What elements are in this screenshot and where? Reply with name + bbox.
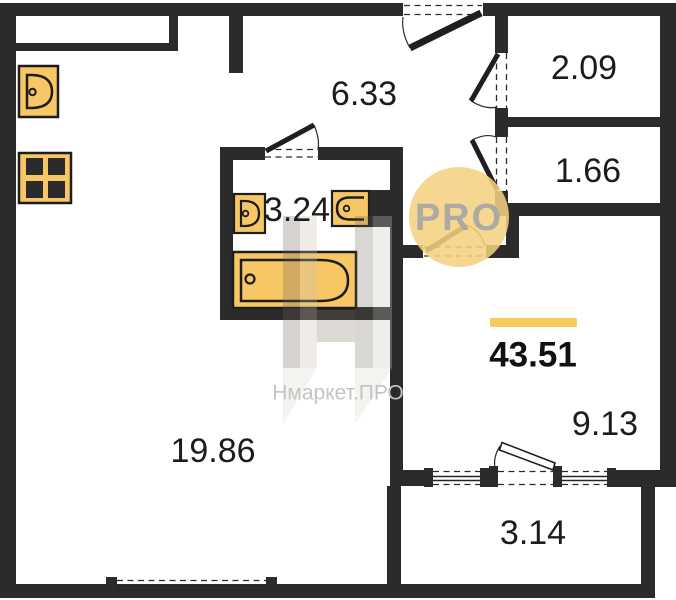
watermark-shape [300, 216, 317, 368]
balcony-window-right [562, 468, 616, 487]
wall-storage-divider [508, 117, 660, 127]
window-glazing [433, 477, 480, 481]
window-post [607, 468, 616, 487]
door-leaf [471, 54, 498, 101]
wall-storage-jamb-top [495, 16, 508, 53]
wall-balcony-left [387, 486, 401, 598]
bathroom-door [265, 125, 319, 157]
wall-top-left [0, 3, 403, 16]
kitchen-sink [19, 66, 58, 117]
door-swing-arc [314, 125, 319, 149]
sink-body [234, 194, 265, 233]
wall-storage-jamb-middle [495, 108, 508, 137]
window-glazing [562, 477, 607, 481]
window-post [424, 468, 433, 487]
watermark-shape [355, 216, 373, 368]
watermark-brand-text: Нмаркет.ПРО [272, 382, 403, 405]
wall-below-storage [495, 203, 660, 216]
door-swing-arc [403, 17, 410, 48]
stove-burner [26, 158, 43, 175]
wall-top-right [483, 3, 676, 16]
door-post [489, 466, 498, 487]
label-balcony-area: 3.14 [500, 514, 566, 552]
label-hallway-area: 6.33 [331, 75, 397, 113]
balcony-door [489, 443, 562, 488]
wall-entry-partition [229, 16, 243, 73]
wall-balcony-right [641, 486, 655, 598]
label-living-area: 19.86 [170, 432, 255, 470]
pro-logo-badge: PRO [409, 167, 509, 267]
door-dashed-opening [498, 472, 553, 485]
wall-window-row-right [616, 470, 676, 487]
label-room-area: 9.13 [572, 405, 638, 443]
label-bathroom-area: 3.24 [264, 191, 330, 229]
stove-burner [26, 181, 43, 198]
pro-logo-text: PRO [415, 197, 503, 239]
stove-burner [48, 158, 65, 175]
floor-plan-drawing: Нмаркет.ПРО 19.86 6.33 2.09 1.66 3.24 9.… [0, 0, 676, 600]
floor-plan-image: Нмаркет.ПРО 19.86 6.33 2.09 1.66 3.24 9.… [0, 0, 676, 600]
bathroom-sink [234, 194, 265, 233]
door-swing-arc [471, 101, 497, 108]
label-storage-lower-area: 1.66 [555, 152, 621, 190]
window-post [480, 468, 489, 487]
wall-kitchen-niche-horizontal [16, 43, 178, 51]
watermark-shape [283, 216, 300, 368]
label-storage-upper-area: 2.09 [551, 49, 617, 87]
wall-bathroom-left [220, 147, 233, 320]
storage-upper-door [471, 53, 507, 108]
wall-left [0, 3, 16, 598]
window-post [106, 577, 117, 596]
label-total-area: 43.51 [489, 336, 577, 375]
door-leaf [410, 13, 481, 48]
watermark-shape [317, 310, 355, 342]
wall-window-row-left [390, 470, 424, 486]
door-leaf [500, 443, 556, 471]
wall-right [660, 3, 676, 487]
stove [19, 153, 71, 203]
window-dashed-line [433, 472, 480, 485]
stove-burner [48, 181, 65, 198]
entrance-door [403, 6, 482, 49]
wall-kitchen-niche-vertical [169, 16, 178, 48]
total-area-accent-bar [490, 318, 577, 327]
door-dashed-opening [404, 6, 482, 15]
door-dashed-opening [497, 137, 507, 191]
door-post [553, 466, 562, 487]
wall-balcony-bottom [387, 584, 655, 598]
door-leaf [266, 125, 314, 151]
balcony-window-left [424, 468, 489, 487]
wall-bathroom-top-1 [220, 147, 265, 160]
door-dashed-opening [265, 150, 318, 158]
window-post [266, 577, 277, 596]
door-swing-arc [472, 136, 496, 140]
door-dashed-opening [497, 53, 507, 108]
watermark-shape [373, 216, 392, 368]
window-dashed-line [562, 472, 607, 485]
